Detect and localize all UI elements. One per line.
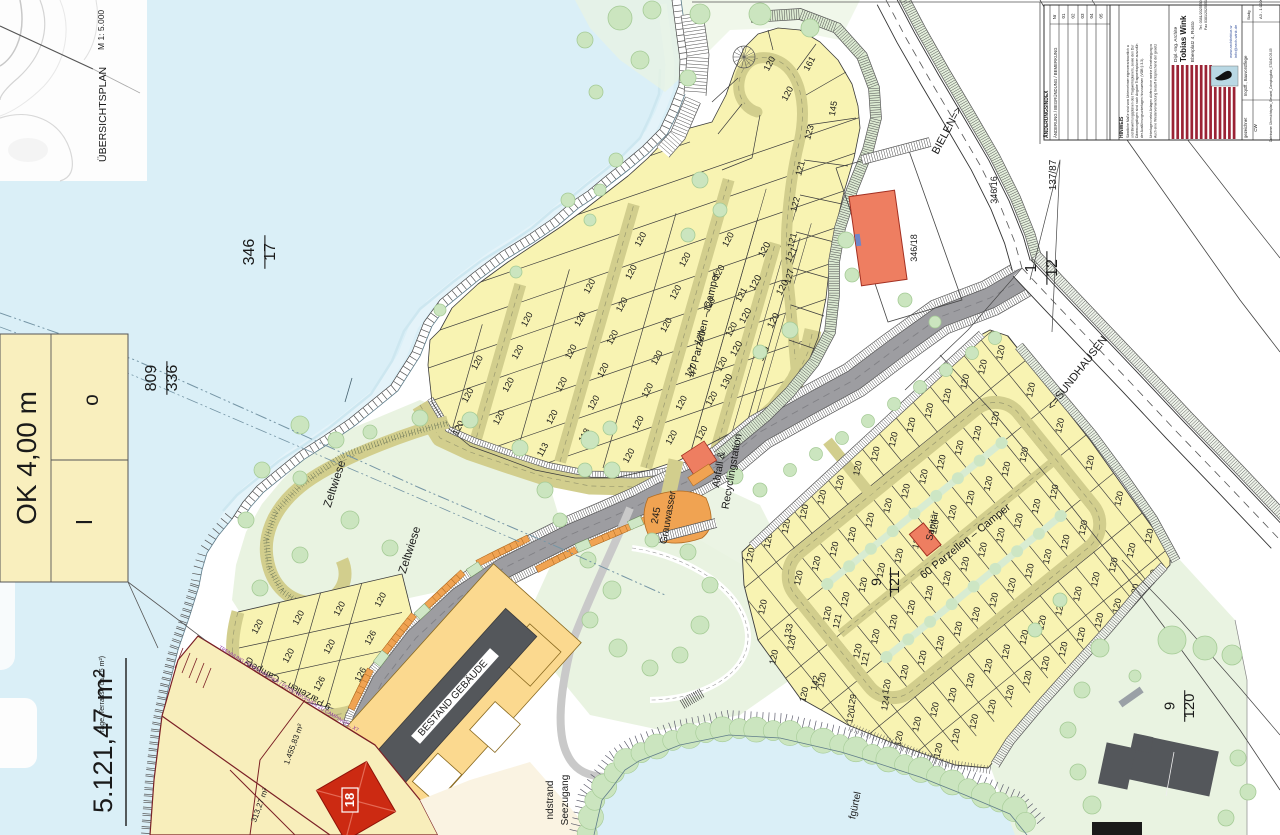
svg-text:HINWEIS: HINWEIS — [1119, 116, 1125, 138]
svg-text:CW: CW — [1253, 124, 1258, 132]
svg-text:346/18: 346/18 — [909, 234, 919, 262]
svg-text:05: 05 — [1099, 13, 1104, 19]
svg-text:Ebenplatz 4, Rosto: Ebenplatz 4, Rosto — [1190, 21, 1196, 62]
svg-text:ÄNDERUNG / BEGRÜNDUNG / BEMERK: ÄNDERUNG / BEGRÜNDUNG / BEMERKUNG — [1053, 47, 1058, 138]
svg-text:137/87: 137/87 — [1048, 159, 1059, 190]
svg-text:ÜBERSICHTSPLAN: ÜBERSICHTSPLAN — [97, 67, 109, 162]
svg-text:Fax 0381/2025551: Fax 0381/2025551 — [1204, 0, 1208, 30]
svg-text:1: 1 — [1023, 263, 1040, 272]
svg-text:A3 - 1:1000: A3 - 1:1000 — [1258, 0, 1263, 19]
svg-text:Tobias Wink: Tobias Wink — [1179, 15, 1188, 62]
svg-text:Sämtliche Maße sind vom Untern: Sämtliche Maße sind vom Unternehmer eige… — [1126, 45, 1130, 138]
svg-text:o: o — [80, 394, 103, 406]
svg-text:Stallg: Stallg — [1247, 11, 1251, 21]
svg-text:9: 9 — [1162, 702, 1179, 710]
svg-text:120: 120 — [1181, 693, 1198, 718]
svg-text:9: 9 — [868, 578, 884, 586]
svg-text:M 1: 5.000: M 1: 5.000 — [96, 10, 106, 50]
svg-text:346/16: 346/16 — [989, 176, 999, 204]
svg-text:02: 02 — [1070, 13, 1075, 19]
svg-text:Tel. 0381/2025550: Tel. 0381/2025550 — [1199, 0, 1203, 30]
svg-text:03: 03 — [1080, 13, 1085, 19]
svg-text:18: 18 — [342, 793, 357, 807]
svg-text:121: 121 — [886, 570, 902, 594]
svg-text:ndstrand: ndstrand — [545, 781, 556, 820]
svg-text:Nr: Nr — [1052, 14, 1057, 19]
svg-text:und Bewehrungsplänen des Tragw: und Bewehrungsplänen des Tragwerksplaner… — [1131, 44, 1135, 138]
svg-text:01: 01 — [1061, 13, 1066, 19]
svg-text:04: 04 — [1089, 13, 1094, 19]
svg-text:Unterlagen nebst Anlagen dürfe: Unterlagen nebst Anlagen dürfen ohne mei… — [1149, 44, 1153, 138]
svg-text:ÄNDERUNGSINDEX: ÄNDERUNGSINDEX — [1043, 90, 1050, 138]
svg-text:809: 809 — [143, 365, 160, 392]
svg-text:info@arch-wink.de: info@arch-wink.de — [1233, 24, 1238, 58]
svg-text:Seezugang: Seezugang — [560, 775, 571, 826]
svg-text:Dateiname: Übersichtsplan_Gesa: Dateiname: Übersichtsplan_Gesamt_Camping… — [1269, 48, 1273, 142]
svg-text:der Ausführungsunterlagen hinz: der Ausführungsunterlagen hinzuweisen (V… — [1140, 58, 1144, 138]
svg-text:346: 346 — [241, 239, 258, 266]
svg-text:Auch eine Wiederverwendung bed: Auch eine Wiederverwendung bedarf entspr… — [1154, 44, 1158, 138]
svg-text:rage, Terrasse ca.75 m²): rage, Terrasse ca.75 m²) — [99, 656, 106, 732]
svg-text:OK 4,00 m: OK 4,00 m — [11, 391, 42, 525]
svg-text:Inqstff., Bauvorstflege: Inqstff., Bauvorstflege — [1243, 55, 1248, 96]
svg-text:Dämmungsfugen sind nach Angabe: Dämmungsfugen sind nach Angabe Tragwerks… — [1135, 43, 1139, 138]
svg-text:gezeichnet: gezeichnet — [1243, 117, 1248, 138]
svg-text:I: I — [71, 519, 97, 525]
svg-text:17: 17 — [262, 243, 279, 261]
